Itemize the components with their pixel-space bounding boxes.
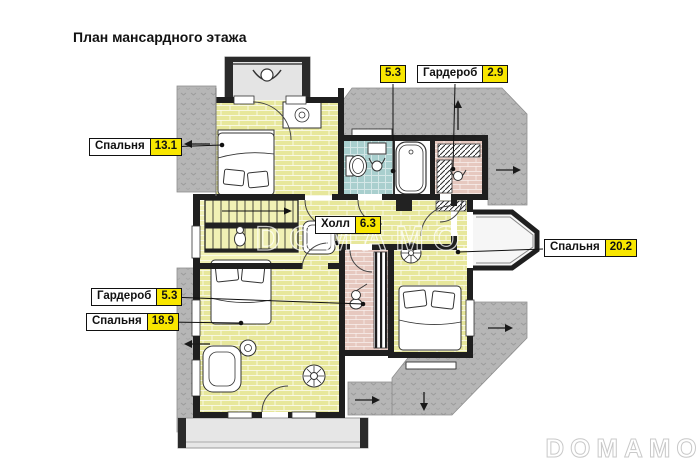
toilet	[346, 156, 367, 177]
room-label-bathroom: 5.3	[380, 65, 406, 83]
room-name: Спальня	[544, 239, 606, 257]
room-area: 6.3	[356, 216, 381, 234]
room-label-wardrobe-2-9: Гардероб 2.9	[417, 65, 508, 83]
room-area: 5.3	[157, 288, 182, 306]
room-name: Спальня	[86, 313, 148, 331]
towel-shelf	[352, 129, 392, 136]
dresser-13	[283, 102, 321, 128]
person-stairs-figure	[235, 227, 246, 247]
room-name: Гардероб	[91, 288, 157, 306]
room-label-bedroom-20: Спальня 20.2	[544, 239, 637, 257]
room-label-bedroom-13: Спальня 13.1	[89, 138, 182, 156]
bed-20	[399, 286, 461, 350]
room-area: 5.3	[380, 65, 406, 83]
room-name: Гардероб	[417, 65, 483, 83]
room-label-wardrobe-5-3: Гардероб 5.3	[91, 288, 182, 306]
terrace	[178, 418, 368, 448]
roof-wedge-bottom	[348, 382, 392, 415]
room-name: Спальня	[89, 138, 151, 156]
plant-18	[303, 365, 325, 387]
bathtub	[396, 142, 426, 194]
bed-13	[218, 130, 274, 195]
bench-20	[406, 362, 456, 369]
page-title: План мансардного этажа	[73, 29, 247, 45]
room-label-hall: Холл 6.3	[315, 216, 381, 234]
wardrobe-5-3-unit	[374, 252, 387, 348]
room-name: Холл	[315, 216, 356, 234]
watermark-corner: DOMAMO	[545, 433, 700, 463]
bay-window	[473, 212, 537, 268]
room-area: 20.2	[606, 239, 637, 257]
bed-18	[211, 260, 271, 324]
room-area: 2.9	[483, 65, 508, 83]
floor-plan-drawing: DOMAMO DOMAMO	[0, 0, 700, 467]
room-area: 13.1	[151, 138, 182, 156]
roof-strip-left-top	[177, 86, 216, 192]
room-label-bedroom-18: Спальня 18.9	[86, 313, 179, 331]
hall-cabinet	[396, 200, 412, 211]
floor-plan-page: DOMAMO DOMAMO План мансардного этажа Спа…	[0, 0, 700, 467]
room-area: 18.9	[148, 313, 179, 331]
